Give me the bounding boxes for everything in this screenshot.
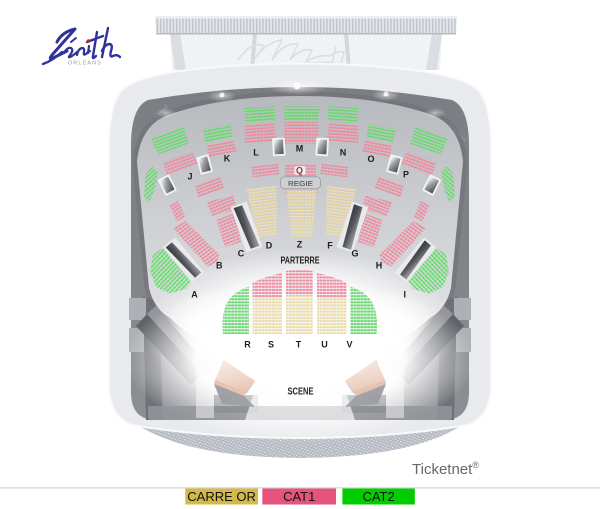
svg-text:T: T	[296, 340, 302, 350]
svg-text:SCENE: SCENE	[288, 385, 314, 397]
svg-text:P: P	[403, 170, 409, 180]
svg-text:CARRE OR: CARRE OR	[187, 489, 256, 504]
svg-text:K: K	[224, 154, 231, 164]
svg-text:C: C	[238, 249, 245, 259]
svg-text:I: I	[404, 290, 407, 300]
svg-text:Q: Q	[296, 165, 303, 175]
svg-text:F: F	[327, 241, 333, 251]
svg-text:ORLEANS: ORLEANS	[68, 61, 102, 67]
svg-text:S: S	[268, 340, 274, 350]
svg-text:D: D	[266, 241, 273, 251]
svg-text:G: G	[351, 249, 358, 259]
svg-text:J: J	[187, 172, 192, 182]
svg-text:PARTERRE: PARTERRE	[281, 255, 320, 267]
svg-text:CAT2: CAT2	[362, 489, 394, 504]
svg-text:V: V	[346, 340, 352, 350]
svg-text:Ticketnet®: Ticketnet®	[412, 460, 479, 478]
svg-text:Z: Z	[297, 240, 303, 250]
svg-text:B: B	[216, 261, 223, 271]
svg-text:R: R	[244, 340, 251, 350]
svg-text:N: N	[340, 148, 347, 158]
svg-text:A: A	[191, 290, 198, 300]
svg-text:REGIE: REGIE	[288, 179, 313, 188]
svg-text:L: L	[253, 148, 259, 158]
svg-text:H: H	[376, 261, 383, 271]
svg-text:M: M	[296, 144, 304, 154]
svg-text:CAT1: CAT1	[283, 489, 315, 504]
svg-text:O: O	[367, 154, 374, 164]
svg-text:U: U	[321, 340, 328, 350]
